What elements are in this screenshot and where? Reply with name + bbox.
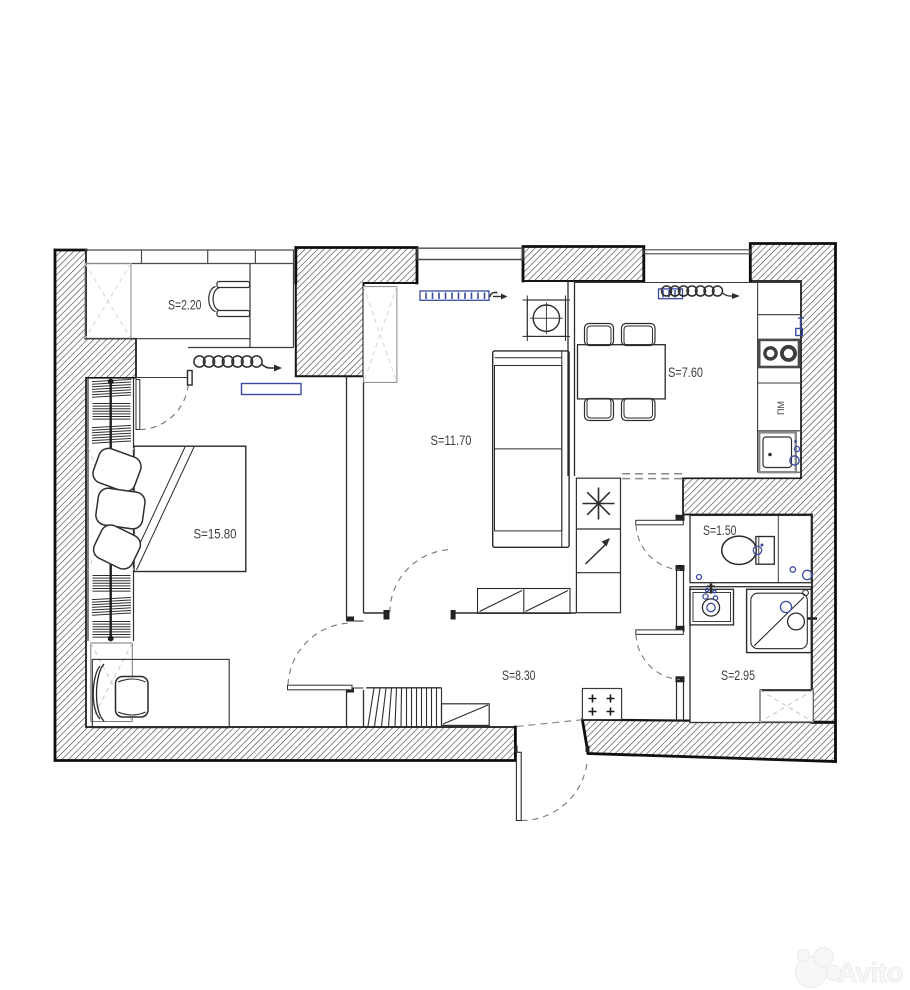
svg-text:S=2.20: S=2.20: [168, 297, 202, 313]
svg-text:S=2.95: S=2.95: [721, 667, 755, 683]
svg-text:ПМ: ПМ: [776, 401, 786, 415]
svg-text:S=1.50: S=1.50: [703, 522, 737, 538]
svg-text:Avito: Avito: [837, 957, 903, 988]
svg-text:S=15.80: S=15.80: [194, 526, 237, 542]
svg-text:S=8.30: S=8.30: [502, 667, 536, 683]
svg-text:S=11.70: S=11.70: [431, 432, 472, 448]
svg-text:S=7.60: S=7.60: [668, 364, 703, 380]
